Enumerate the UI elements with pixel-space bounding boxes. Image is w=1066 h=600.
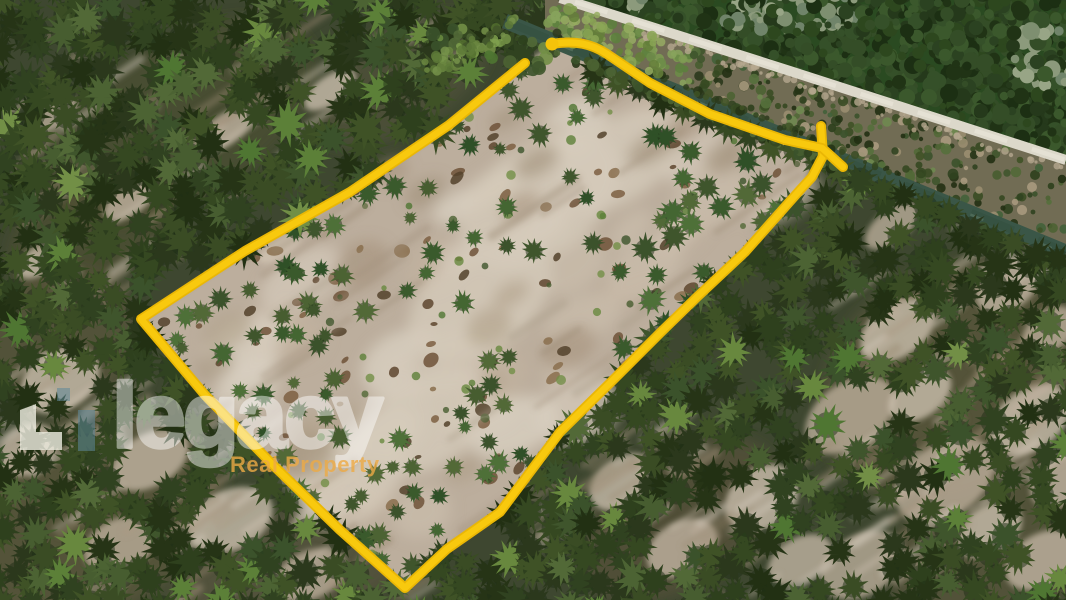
svg-text:Real Property: Real Property (230, 452, 380, 477)
